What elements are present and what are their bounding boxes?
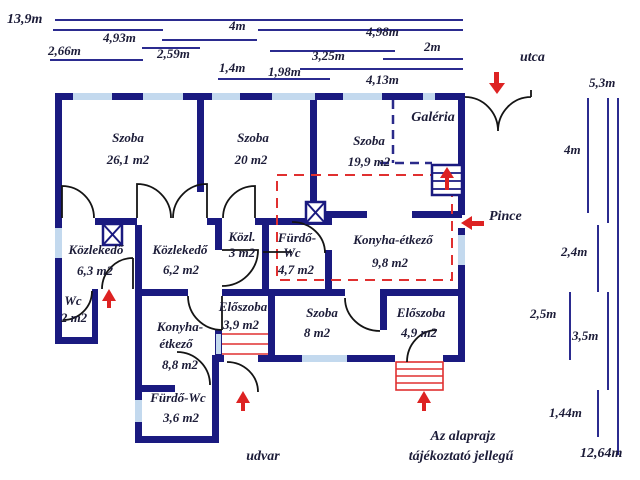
dim-label: 2,59m — [157, 47, 190, 61]
room-label-szoba-2: Szoba — [237, 131, 269, 145]
room-area-szoba-3: 19,9 m2 — [348, 155, 391, 169]
dim-label: 1,44m — [549, 406, 582, 420]
courtyard-door-arrow-icon — [236, 391, 250, 411]
room-label-szoba-1: Szoba — [112, 131, 144, 145]
disclaimer-line-2: tájékoztató jellegű — [409, 449, 514, 464]
dim-label: 4m — [564, 143, 581, 157]
room-area-furdo-36: 3,6 m2 — [163, 411, 199, 425]
room-area-eloszoba-49: 4,9 m2 — [401, 326, 437, 340]
room-area-szoba-8: 8 m2 — [304, 326, 330, 340]
door-arc — [137, 184, 171, 218]
dim-label: 13,9m — [7, 12, 42, 27]
room-label-eloszoba-49: Előszoba — [397, 306, 445, 320]
gallery-label: Galéria — [411, 110, 455, 125]
shaft-x-icon — [306, 202, 325, 223]
courtyard-entrance-arrow-icon — [102, 289, 116, 308]
room-label-wc-2: Wc — [64, 294, 81, 308]
cellar-label: Pince — [489, 209, 522, 224]
room-area-wc-2: 2 m2 — [61, 311, 87, 325]
door-arc — [223, 186, 255, 218]
dim-label: 2,5m — [530, 307, 556, 321]
room-label-furdo-36: Fürdő-Wc — [150, 391, 206, 405]
dim-label: 2,4m — [561, 245, 587, 259]
disclaimer-line-1: Az alaprajz — [431, 429, 496, 444]
room-area-konyha-88: 8,8 m2 — [162, 358, 198, 372]
stairs-entrance-arrow-icon — [417, 391, 431, 411]
room-label-kozl-3: Közl. — [228, 230, 255, 244]
entrance-double-door-arc — [465, 90, 531, 131]
room-label-konyha-88: Konyha- — [157, 320, 203, 334]
door-arc — [62, 186, 94, 218]
courtyard-label: udvar — [246, 449, 279, 464]
dim-label: 4,13m — [366, 73, 399, 87]
room-label-eloszoba-39: Előszoba — [219, 300, 267, 314]
dim-label: 4,98m — [366, 25, 399, 39]
room-area-kozlekedo-2: 6,2 m2 — [163, 263, 199, 277]
room-label-szoba-8: Szoba — [306, 306, 338, 320]
room-label-furdo-47b: Wc — [283, 246, 300, 260]
room-area-eloszoba-39: 3,9 m2 — [223, 318, 259, 332]
street-entrance-arrow-icon — [489, 72, 505, 94]
dim-label: 4,93m — [103, 31, 136, 45]
door-arc — [345, 298, 380, 331]
door-arc — [227, 362, 258, 392]
cellar-arrow-icon — [461, 216, 484, 230]
entrance-stairs-icon — [396, 362, 443, 390]
dim-label: 5,3m — [589, 76, 615, 90]
floor-plan-drawing — [0, 0, 640, 480]
room-label-szoba-3: Szoba — [353, 134, 385, 148]
street-label: utca — [520, 50, 545, 65]
room-label-furdo-47: Fürdő- — [278, 231, 316, 245]
room-label-kozlekedo-2: Közlekedő — [153, 243, 208, 257]
top-dimension-lines — [50, 20, 463, 79]
hall-steps-icon — [222, 334, 268, 354]
dim-label: 1,98m — [268, 65, 301, 79]
dim-label: 2,66m — [48, 44, 81, 58]
room-label-konyha-88b: étkező — [159, 337, 192, 351]
dim-label: 3,25m — [312, 49, 345, 63]
floor-plan-canvas: 13,9m 4,93m 2,66m 2,59m 4m 1,4m 1,98m 3,… — [0, 0, 640, 480]
room-area-furdo-47: 4,7 m2 — [278, 263, 314, 277]
room-area-konyha-98: 9,8 m2 — [372, 256, 408, 270]
room-area-szoba-1: 26,1 m2 — [107, 153, 150, 167]
room-area-szoba-2: 20 m2 — [235, 153, 268, 167]
dim-label: 3,5m — [572, 329, 598, 343]
dim-label: 1,4m — [219, 61, 245, 75]
room-area-kozl-3: 3 m2 — [229, 246, 255, 260]
room-area-kozlekedo-1: 6,3 m2 — [77, 264, 113, 278]
room-label-kozlekedo-1: Közlekedő — [69, 243, 124, 257]
dim-label: 2m — [424, 40, 441, 54]
dim-label: 12,64m — [580, 446, 622, 461]
dim-label: 4m — [229, 19, 246, 33]
room-label-konyha-98: Konyha-étkező — [353, 233, 432, 247]
